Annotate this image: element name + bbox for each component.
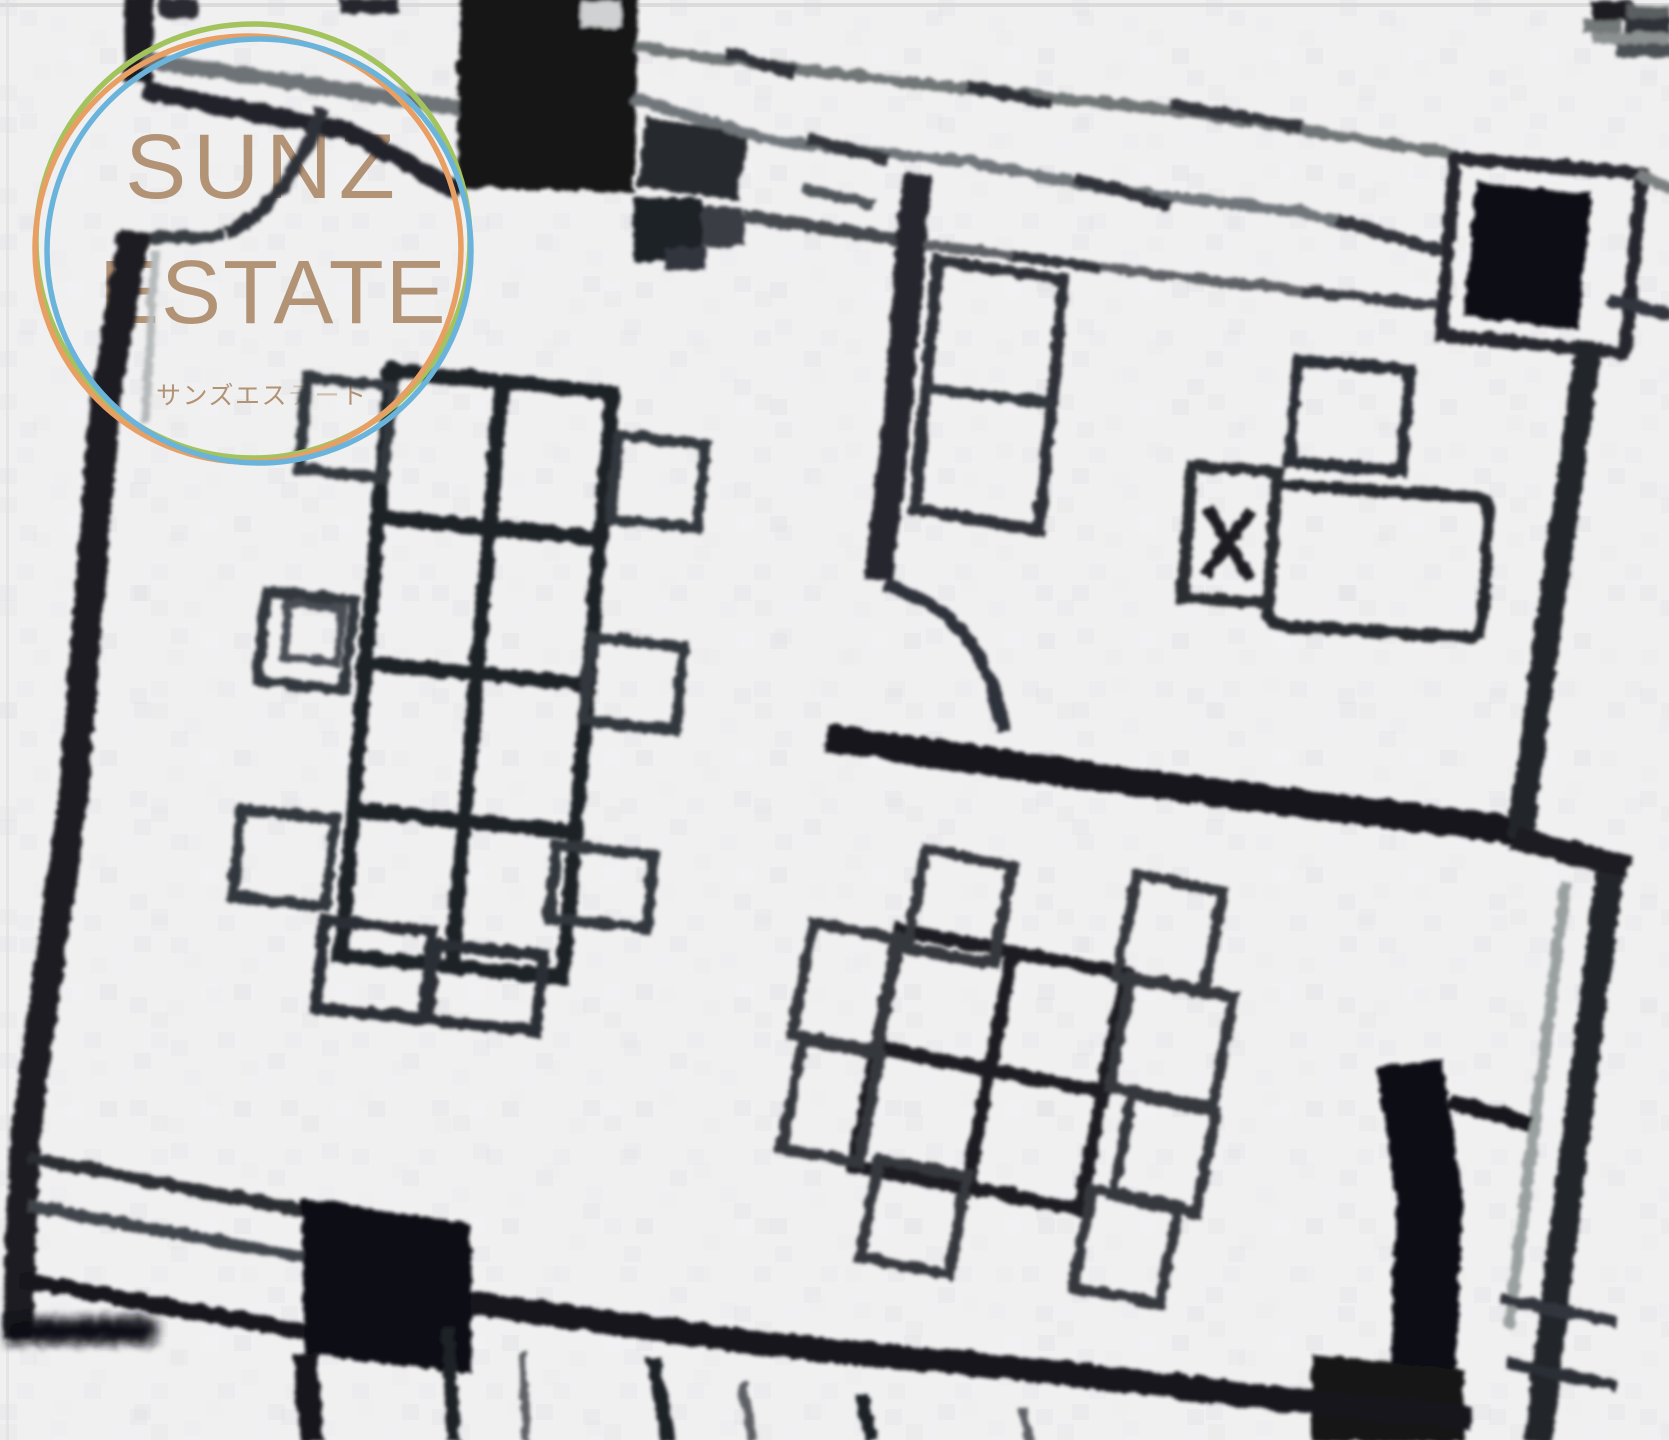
svg-text:サンズエステート: サンズエステート [156,382,368,410]
